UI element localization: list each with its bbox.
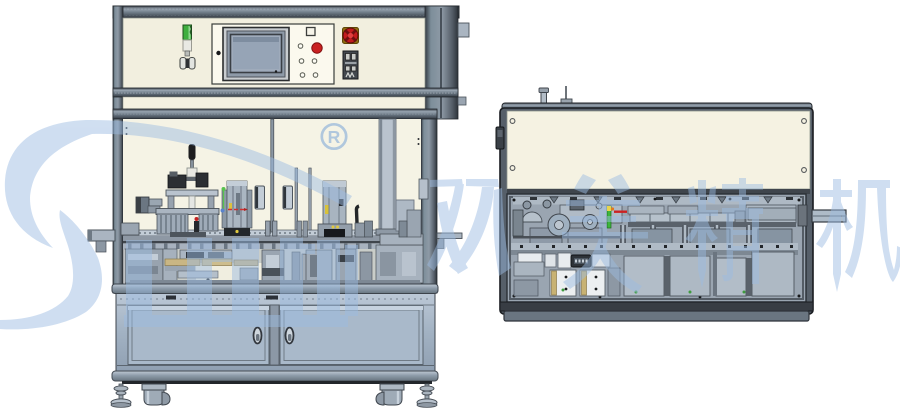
svg-text:R: R [328,127,341,147]
